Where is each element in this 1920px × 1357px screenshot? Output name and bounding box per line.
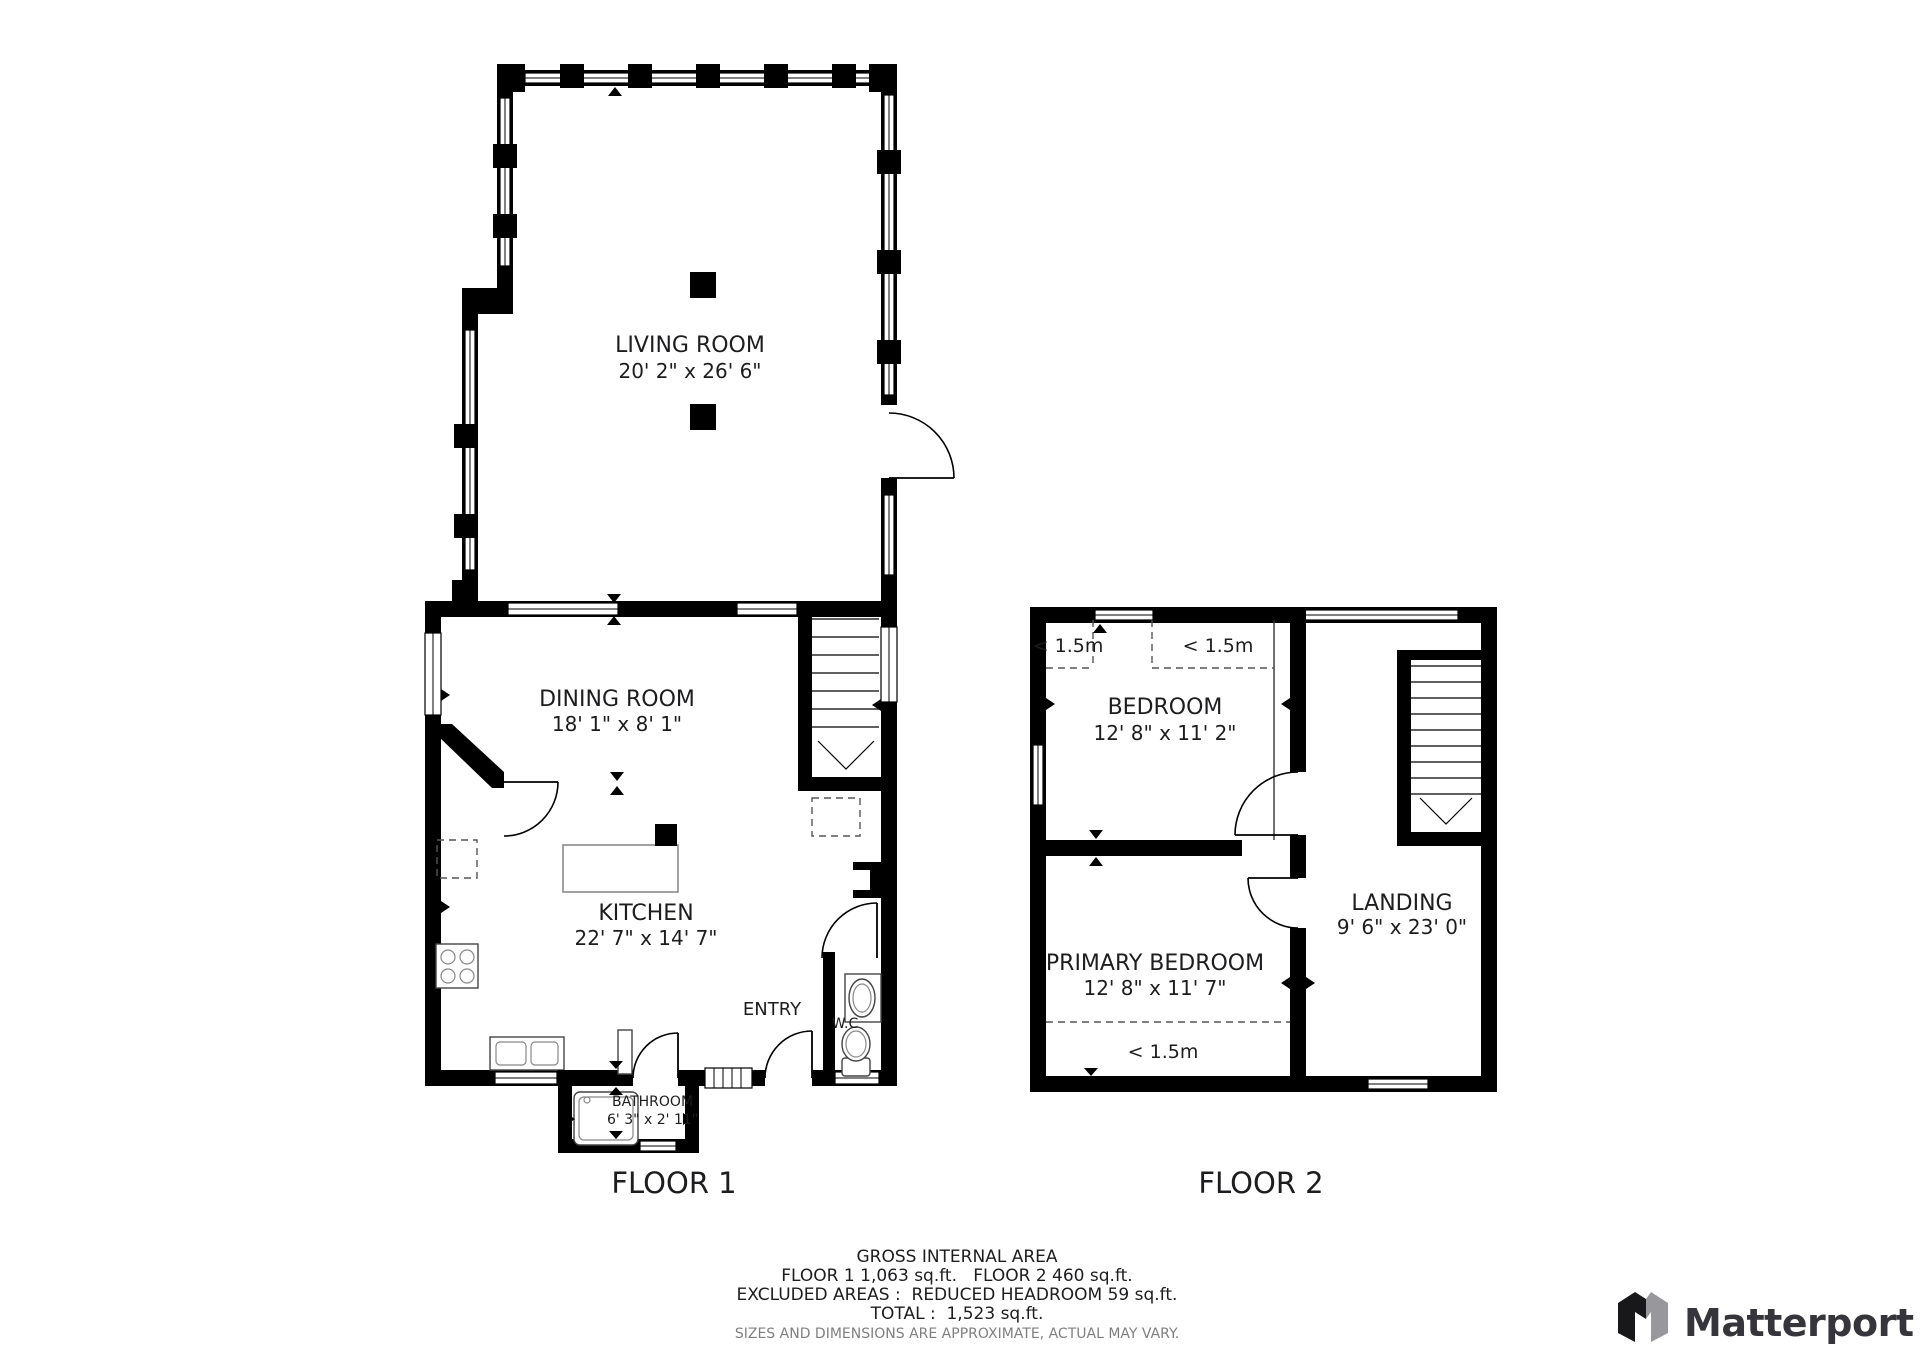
headroom-center-label: < 1.5m [1183,635,1254,657]
matterport-logo-text: Matterport [1684,1301,1914,1345]
landing-dims: 9' 6" x 23' 0" [1337,915,1467,939]
landing-label: LANDING [1351,891,1452,916]
appliance-dashed [437,840,477,878]
wc-toilet [842,1027,870,1076]
matterport-logo-icon [1618,1292,1668,1342]
wc-label: W.C [832,1016,859,1032]
disclaimer-line: SIZES AND DIMENSIONS ARE APPROXIMATE, AC… [735,1326,1179,1342]
floor2-plan: < 1.5m < 1.5m BEDROOM 12' 8" x 11' 2" PR… [1030,607,1497,1092]
primary-bedroom-dims: 12' 8" x 11' 7" [1083,976,1226,1000]
bedroom-door [1235,772,1298,835]
kitchen-sink-counter [490,1037,564,1070]
floor1-main-block: DINING ROOM 18' 1" x 8' 1" KITCHEN 22' 7… [425,594,897,1153]
cabinet [618,1030,632,1074]
entry-steps [705,1068,752,1088]
primary-bedroom-label: PRIMARY BEDROOM [1046,951,1264,976]
floor-areas-line: FLOOR 1 1,063 sq.ft. FLOOR 2 460 sq.ft. [781,1266,1132,1286]
kitchen-island [563,824,678,892]
column [690,272,716,298]
floor1-caption: FLOOR 1 [611,1166,736,1200]
fireplace [853,862,881,898]
matterport-logo: Matterport [1618,1292,1914,1345]
kitchen-label: KITCHEN [598,901,693,926]
column [655,824,677,846]
gross-internal-area-title: GROSS INTERNAL AREA [856,1247,1057,1267]
stove [436,944,478,988]
kitchen-dims: 22' 7" x 14' 7" [574,926,717,950]
reduced-headroom-closet [812,798,860,836]
bathroom-dims: 6' 3" x 2' 11" [607,1112,698,1128]
floor2-staircase [1397,650,1481,846]
floor-plan-page: LIVING ROOM 20' 2" x 26' 6" [0,0,1920,1357]
total-area-line: TOTAL : 1,523 sq.ft. [870,1304,1044,1324]
living-room-label: LIVING ROOM [615,333,765,358]
sliding-door [508,594,621,625]
bathroom-label: BATHROOM [612,1094,693,1110]
headroom-left-label: < 1.5m [1033,635,1104,657]
primary-bedroom-door [1248,878,1298,928]
headroom-bottom-label: < 1.5m [1128,1041,1199,1063]
floor-plan-canvas: LIVING ROOM 20' 2" x 26' 6" [0,0,1920,1357]
floor1-living-wing: LIVING ROOM 20' 2" x 26' 6" [452,64,954,604]
dining-room-label: DINING ROOM [539,687,695,712]
area-summary: GROSS INTERNAL AREA FLOOR 1 1,063 sq.ft.… [735,1247,1179,1342]
entry-label: ENTRY [743,999,802,1020]
wc-room [822,903,881,1086]
dining-closet [438,724,558,836]
living-room-dims: 20' 2" x 26' 6" [618,359,761,383]
excluded-areas-line: EXCLUDED AREAS : REDUCED HEADROOM 59 sq.… [737,1285,1178,1305]
wc-sink [845,974,881,1022]
dining-room-dims: 18' 1" x 8' 1" [552,712,682,736]
bedroom-label: BEDROOM [1108,695,1223,720]
floor2-caption: FLOOR 2 [1198,1166,1323,1200]
living-room-exterior-door [889,413,954,478]
column [690,404,716,430]
bedroom-dims: 12' 8" x 11' 2" [1093,721,1236,745]
